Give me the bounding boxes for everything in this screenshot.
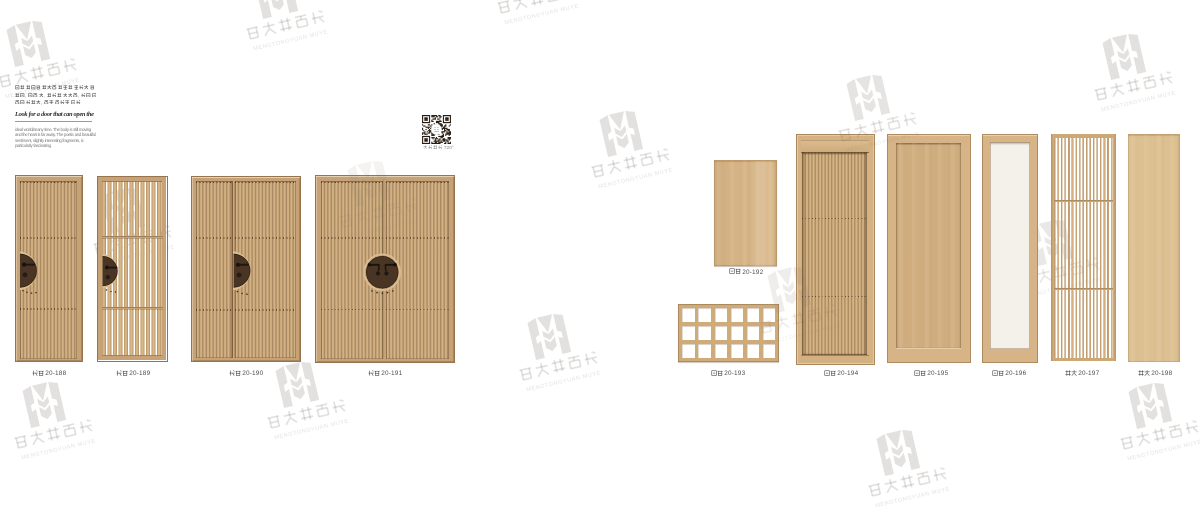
svg-text:MENGTONGYUAN MUYE: MENGTONGYUAN MUYE [346,217,422,240]
svg-text:MENGTONGYUAN MUYE: MENGTONGYUAN MUYE [845,131,921,154]
svg-text:MENGTONGYUAN MUYE: MENGTONGYUAN MUYE [21,438,97,461]
svg-text:MENGTONGYUAN MUYE: MENGTONGYUAN MUYE [504,3,580,26]
svg-text:MENGTONGYUAN MUYE: MENGTONGYUAN MUYE [766,323,842,346]
svg-text:MENGTONGYUAN MUYE: MENGTONGYUAN MUYE [253,29,329,52]
svg-text:MENGTONGYUAN MUYE: MENGTONGYUAN MUYE [1100,90,1176,113]
svg-text:MENGTONGYUAN MUYE: MENGTONGYUAN MUYE [874,486,950,509]
svg-text:MENGTONGYUAN MUYE: MENGTONGYUAN MUYE [598,167,674,190]
svg-text:MENGTONGYUAN MUYE: MENGTONGYUAN MUYE [1127,439,1200,462]
svg-text:MENGTONGYUAN MUYE: MENGTONGYUAN MUYE [274,418,350,441]
svg-text:MENGTONGYUAN MUYE: MENGTONGYUAN MUYE [5,78,81,101]
svg-text:MENGTONGYUAN MUYE: MENGTONGYUAN MUYE [526,370,602,393]
